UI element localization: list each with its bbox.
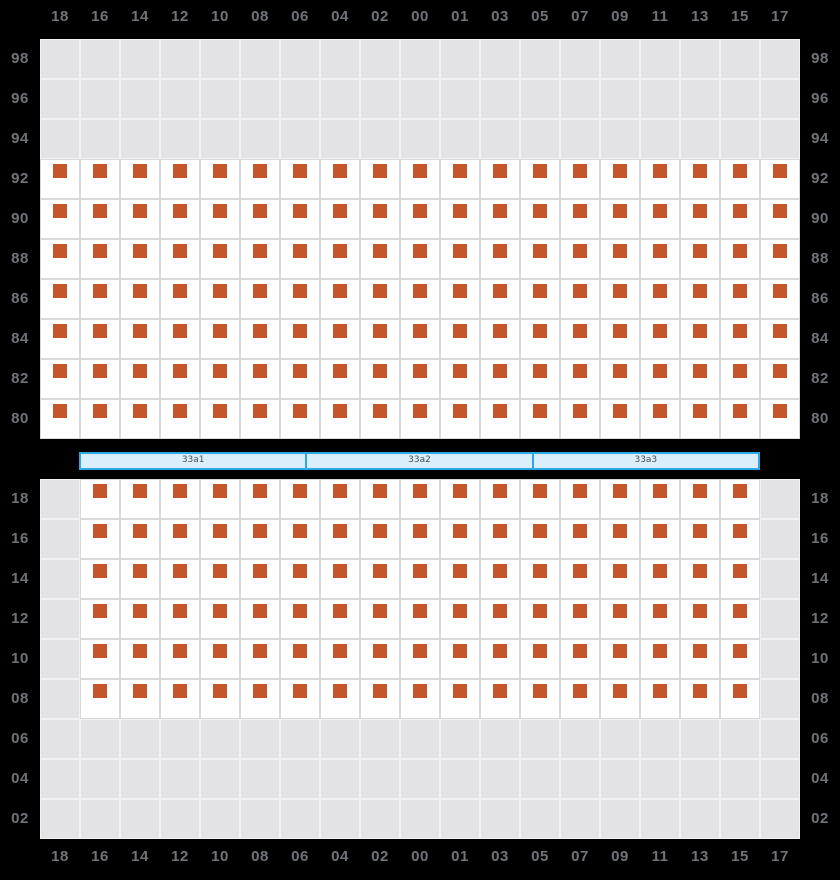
seat-cell[interactable] bbox=[120, 399, 160, 439]
seat-cell[interactable] bbox=[240, 239, 280, 279]
seat-cell[interactable] bbox=[720, 519, 760, 559]
seat-marker bbox=[693, 164, 707, 178]
seat-cell[interactable] bbox=[40, 399, 80, 439]
seat-cell[interactable] bbox=[480, 199, 520, 239]
row-label-right: 98 bbox=[800, 39, 840, 79]
seat-cell[interactable] bbox=[320, 199, 360, 239]
seat-cell[interactable] bbox=[80, 159, 120, 199]
seat-cell[interactable] bbox=[400, 159, 440, 199]
seat-cell[interactable] bbox=[280, 279, 320, 319]
seat-cell[interactable] bbox=[440, 359, 480, 399]
seat-cell[interactable] bbox=[560, 559, 600, 599]
seat-cell[interactable] bbox=[320, 319, 360, 359]
seat-marker bbox=[213, 244, 227, 258]
seat-cell[interactable] bbox=[280, 159, 320, 199]
seat-cell[interactable] bbox=[720, 159, 760, 199]
seat-cell[interactable] bbox=[400, 199, 440, 239]
seat-cell[interactable] bbox=[320, 479, 360, 519]
seat-cell[interactable] bbox=[400, 399, 440, 439]
seat-cell[interactable] bbox=[160, 599, 200, 639]
seat-cell[interactable] bbox=[280, 239, 320, 279]
seat-cell[interactable] bbox=[200, 159, 240, 199]
seat-cell[interactable] bbox=[640, 239, 680, 279]
seat-cell[interactable] bbox=[640, 319, 680, 359]
seat-marker bbox=[653, 684, 667, 698]
seat-cell[interactable] bbox=[200, 679, 240, 719]
seat-marker bbox=[533, 204, 547, 218]
seat-cell[interactable] bbox=[560, 479, 600, 519]
seat-cell[interactable] bbox=[560, 159, 600, 199]
seat-cell[interactable] bbox=[360, 559, 400, 599]
seat-cell[interactable] bbox=[480, 679, 520, 719]
seat-cell[interactable] bbox=[440, 559, 480, 599]
seat-cell[interactable] bbox=[640, 559, 680, 599]
seat-cell[interactable] bbox=[640, 279, 680, 319]
seat-cell[interactable] bbox=[760, 279, 800, 319]
seat-cell[interactable] bbox=[600, 639, 640, 679]
seat-cell[interactable] bbox=[280, 399, 320, 439]
seat-cell[interactable] bbox=[80, 679, 120, 719]
seat-cell[interactable] bbox=[320, 399, 360, 439]
seat-cell[interactable] bbox=[560, 279, 600, 319]
seat-cell[interactable] bbox=[560, 639, 600, 679]
seat-cell[interactable] bbox=[200, 639, 240, 679]
empty-cell bbox=[760, 39, 800, 79]
seat-marker bbox=[573, 604, 587, 618]
seat-cell[interactable] bbox=[720, 239, 760, 279]
empty-cell bbox=[720, 79, 760, 119]
seat-cell[interactable] bbox=[240, 279, 280, 319]
empty-cell bbox=[400, 79, 440, 119]
empty-cell bbox=[200, 79, 240, 119]
seat-cell[interactable] bbox=[120, 199, 160, 239]
seat-cell[interactable] bbox=[760, 199, 800, 239]
seat-cell[interactable] bbox=[360, 639, 400, 679]
seat-cell[interactable] bbox=[280, 679, 320, 719]
seat-cell[interactable] bbox=[600, 519, 640, 559]
seat-cell[interactable] bbox=[720, 199, 760, 239]
seat-cell[interactable] bbox=[280, 319, 320, 359]
seat-cell[interactable] bbox=[520, 359, 560, 399]
seat-cell[interactable] bbox=[480, 239, 520, 279]
seat-cell[interactable] bbox=[360, 479, 400, 519]
seat-cell[interactable] bbox=[280, 639, 320, 679]
seat-marker bbox=[493, 644, 507, 658]
seat-marker bbox=[53, 244, 67, 258]
seat-cell[interactable] bbox=[680, 559, 720, 599]
seat-cell[interactable] bbox=[440, 599, 480, 639]
seat-cell[interactable] bbox=[440, 279, 480, 319]
seat-cell[interactable] bbox=[120, 639, 160, 679]
seat-cell[interactable] bbox=[160, 639, 200, 679]
seat-cell[interactable] bbox=[520, 399, 560, 439]
seat-cell[interactable] bbox=[480, 159, 520, 199]
seat-cell[interactable] bbox=[320, 519, 360, 559]
seat-marker bbox=[173, 604, 187, 618]
seat-cell[interactable] bbox=[480, 559, 520, 599]
seat-cell[interactable] bbox=[160, 199, 200, 239]
seat-cell[interactable] bbox=[120, 279, 160, 319]
seat-cell[interactable] bbox=[480, 519, 520, 559]
seat-cell[interactable] bbox=[160, 239, 200, 279]
seat-cell[interactable] bbox=[240, 559, 280, 599]
seat-cell[interactable] bbox=[440, 239, 480, 279]
row-label-left: 86 bbox=[0, 279, 40, 319]
seat-marker bbox=[133, 364, 147, 378]
seat-marker bbox=[333, 284, 347, 298]
seat-cell[interactable] bbox=[280, 519, 320, 559]
seat-cell[interactable] bbox=[600, 279, 640, 319]
seat-cell[interactable] bbox=[720, 479, 760, 519]
seat-cell[interactable] bbox=[400, 639, 440, 679]
seat-cell[interactable] bbox=[240, 599, 280, 639]
seat-cell[interactable] bbox=[600, 679, 640, 719]
empty-cell bbox=[40, 759, 80, 799]
seat-cell[interactable] bbox=[680, 679, 720, 719]
seat-cell[interactable] bbox=[680, 519, 720, 559]
seat-cell[interactable] bbox=[720, 359, 760, 399]
seat-cell[interactable] bbox=[40, 279, 80, 319]
seat-cell[interactable] bbox=[320, 359, 360, 399]
seat-cell[interactable] bbox=[520, 239, 560, 279]
seat-cell[interactable] bbox=[560, 239, 600, 279]
seat-cell[interactable] bbox=[320, 599, 360, 639]
seat-cell[interactable] bbox=[760, 359, 800, 399]
seat-marker bbox=[93, 564, 107, 578]
seat-cell[interactable] bbox=[240, 159, 280, 199]
seat-marker bbox=[373, 484, 387, 498]
seat-cell[interactable] bbox=[640, 159, 680, 199]
seat-cell[interactable] bbox=[80, 479, 120, 519]
seat-marker bbox=[333, 404, 347, 418]
seat-cell[interactable] bbox=[240, 399, 280, 439]
empty-cell bbox=[200, 719, 240, 759]
seat-cell[interactable] bbox=[200, 239, 240, 279]
seat-cell[interactable] bbox=[400, 519, 440, 559]
seat-cell[interactable] bbox=[440, 199, 480, 239]
seat-cell[interactable] bbox=[400, 359, 440, 399]
seat-cell[interactable] bbox=[720, 399, 760, 439]
column-label: 04 bbox=[320, 0, 360, 33]
seat-cell[interactable] bbox=[40, 239, 80, 279]
seat-cell[interactable] bbox=[680, 639, 720, 679]
seat-cell[interactable] bbox=[240, 679, 280, 719]
row-label-left: 80 bbox=[0, 399, 40, 439]
seat-cell[interactable] bbox=[680, 479, 720, 519]
seat-cell[interactable] bbox=[80, 639, 120, 679]
seat-cell[interactable] bbox=[160, 399, 200, 439]
empty-cell bbox=[280, 719, 320, 759]
seat-cell[interactable] bbox=[360, 279, 400, 319]
seat-cell[interactable] bbox=[160, 679, 200, 719]
seat-marker bbox=[213, 164, 227, 178]
seat-cell[interactable] bbox=[720, 559, 760, 599]
seat-cell[interactable] bbox=[640, 599, 680, 639]
seat-cell[interactable] bbox=[760, 319, 800, 359]
seat-cell[interactable] bbox=[720, 599, 760, 639]
seat-cell[interactable] bbox=[480, 279, 520, 319]
empty-cell bbox=[680, 759, 720, 799]
section-segment[interactable]: 33a1 bbox=[79, 452, 307, 470]
seat-cell[interactable] bbox=[160, 359, 200, 399]
seat-cell[interactable] bbox=[520, 479, 560, 519]
seat-marker bbox=[533, 564, 547, 578]
seat-cell[interactable] bbox=[360, 519, 400, 559]
seat-cell[interactable] bbox=[520, 599, 560, 639]
empty-cell bbox=[120, 759, 160, 799]
seat-cell[interactable] bbox=[440, 319, 480, 359]
seat-cell[interactable] bbox=[120, 159, 160, 199]
seat-cell[interactable] bbox=[600, 359, 640, 399]
seat-cell[interactable] bbox=[480, 399, 520, 439]
seat-marker bbox=[373, 244, 387, 258]
seat-cell[interactable] bbox=[280, 199, 320, 239]
seat-cell[interactable] bbox=[720, 319, 760, 359]
seat-cell[interactable] bbox=[440, 519, 480, 559]
seat-cell[interactable] bbox=[400, 479, 440, 519]
section-segment[interactable]: 33a3 bbox=[532, 452, 760, 470]
seat-marker bbox=[613, 644, 627, 658]
seat-cell[interactable] bbox=[680, 359, 720, 399]
seat-cell[interactable] bbox=[120, 599, 160, 639]
seat-cell[interactable] bbox=[520, 519, 560, 559]
seat-cell[interactable] bbox=[600, 599, 640, 639]
empty-cell bbox=[40, 639, 80, 679]
empty-cell bbox=[400, 39, 440, 79]
empty-cell bbox=[280, 759, 320, 799]
seat-cell[interactable] bbox=[520, 639, 560, 679]
seat-cell[interactable] bbox=[160, 319, 200, 359]
seat-cell[interactable] bbox=[600, 399, 640, 439]
seat-cell[interactable] bbox=[120, 479, 160, 519]
seat-cell[interactable] bbox=[80, 399, 120, 439]
seat-cell[interactable] bbox=[200, 479, 240, 519]
seat-cell[interactable] bbox=[520, 559, 560, 599]
seat-cell[interactable] bbox=[360, 319, 400, 359]
seat-cell[interactable] bbox=[160, 159, 200, 199]
seat-cell[interactable] bbox=[720, 679, 760, 719]
seat-cell[interactable] bbox=[760, 399, 800, 439]
seat-cell[interactable] bbox=[520, 199, 560, 239]
seat-cell[interactable] bbox=[600, 199, 640, 239]
seat-cell[interactable] bbox=[680, 599, 720, 639]
seat-cell[interactable] bbox=[200, 279, 240, 319]
seat-cell[interactable] bbox=[680, 319, 720, 359]
seat-cell[interactable] bbox=[520, 679, 560, 719]
seat-cell[interactable] bbox=[360, 159, 400, 199]
seat-marker bbox=[413, 484, 427, 498]
seat-cell[interactable] bbox=[640, 519, 680, 559]
empty-cell bbox=[40, 79, 80, 119]
seat-cell[interactable] bbox=[520, 159, 560, 199]
seat-cell[interactable] bbox=[760, 159, 800, 199]
seat-marker bbox=[773, 324, 787, 338]
seat-cell[interactable] bbox=[240, 519, 280, 559]
seat-cell[interactable] bbox=[440, 399, 480, 439]
seat-marker bbox=[293, 644, 307, 658]
empty-cell bbox=[760, 79, 800, 119]
seat-cell[interactable] bbox=[360, 239, 400, 279]
seat-cell[interactable] bbox=[240, 359, 280, 399]
empty-cell bbox=[80, 79, 120, 119]
seat-cell[interactable] bbox=[240, 199, 280, 239]
seat-cell[interactable] bbox=[240, 479, 280, 519]
seat-cell[interactable] bbox=[200, 319, 240, 359]
seat-cell[interactable] bbox=[560, 599, 600, 639]
seat-cell[interactable] bbox=[480, 359, 520, 399]
seat-cell[interactable] bbox=[160, 279, 200, 319]
seat-cell[interactable] bbox=[240, 639, 280, 679]
seat-cell[interactable] bbox=[40, 359, 80, 399]
seat-cell[interactable] bbox=[640, 359, 680, 399]
seat-cell[interactable] bbox=[360, 679, 400, 719]
seat-cell[interactable] bbox=[120, 559, 160, 599]
seat-cell[interactable] bbox=[80, 599, 120, 639]
seat-cell[interactable] bbox=[720, 279, 760, 319]
seat-cell[interactable] bbox=[760, 239, 800, 279]
seat-cell[interactable] bbox=[160, 479, 200, 519]
seat-cell[interactable] bbox=[640, 479, 680, 519]
row-label-right: 10 bbox=[800, 639, 840, 679]
seat-cell[interactable] bbox=[200, 519, 240, 559]
seat-cell[interactable] bbox=[160, 559, 200, 599]
seat-cell[interactable] bbox=[680, 199, 720, 239]
seat-cell[interactable] bbox=[560, 319, 600, 359]
row-label-right: 96 bbox=[800, 79, 840, 119]
seat-marker bbox=[773, 364, 787, 378]
seat-cell[interactable] bbox=[480, 599, 520, 639]
seat-cell[interactable] bbox=[240, 319, 280, 359]
section-segment[interactable]: 33a2 bbox=[305, 452, 533, 470]
seat-cell[interactable] bbox=[320, 679, 360, 719]
seat-cell[interactable] bbox=[520, 319, 560, 359]
seat-cell[interactable] bbox=[320, 559, 360, 599]
seat-cell[interactable] bbox=[120, 679, 160, 719]
seat-cell[interactable] bbox=[640, 399, 680, 439]
seat-cell[interactable] bbox=[400, 239, 440, 279]
seat-cell[interactable] bbox=[400, 599, 440, 639]
seat-cell[interactable] bbox=[120, 359, 160, 399]
seat-cell[interactable] bbox=[600, 559, 640, 599]
seat-cell[interactable] bbox=[360, 359, 400, 399]
seat-cell[interactable] bbox=[200, 559, 240, 599]
seat-marker bbox=[253, 404, 267, 418]
seat-cell[interactable] bbox=[200, 199, 240, 239]
seat-cell[interactable] bbox=[280, 559, 320, 599]
seat-cell[interactable] bbox=[80, 559, 120, 599]
seat-cell[interactable] bbox=[560, 679, 600, 719]
seat-cell[interactable] bbox=[200, 359, 240, 399]
empty-cell bbox=[720, 799, 760, 839]
row-label-left: 82 bbox=[0, 359, 40, 399]
seat-cell[interactable] bbox=[440, 679, 480, 719]
seat-cell[interactable] bbox=[400, 679, 440, 719]
seat-cell[interactable] bbox=[480, 479, 520, 519]
seat-cell[interactable] bbox=[80, 519, 120, 559]
seat-cell[interactable] bbox=[200, 599, 240, 639]
seat-cell[interactable] bbox=[280, 599, 320, 639]
seat-marker bbox=[773, 404, 787, 418]
seat-cell[interactable] bbox=[280, 359, 320, 399]
seat-cell[interactable] bbox=[320, 239, 360, 279]
seat-cell[interactable] bbox=[80, 359, 120, 399]
seat-cell[interactable] bbox=[560, 359, 600, 399]
seat-cell[interactable] bbox=[640, 199, 680, 239]
seat-cell[interactable] bbox=[400, 279, 440, 319]
seat-cell[interactable] bbox=[120, 319, 160, 359]
seat-marker bbox=[573, 564, 587, 578]
seat-cell[interactable] bbox=[360, 599, 400, 639]
seat-cell[interactable] bbox=[200, 399, 240, 439]
seat-cell[interactable] bbox=[600, 319, 640, 359]
seat-cell[interactable] bbox=[720, 639, 760, 679]
seat-cell[interactable] bbox=[360, 199, 400, 239]
seat-cell[interactable] bbox=[440, 479, 480, 519]
seat-cell[interactable] bbox=[600, 239, 640, 279]
seat-cell[interactable] bbox=[120, 519, 160, 559]
seat-cell[interactable] bbox=[400, 319, 440, 359]
seat-cell[interactable] bbox=[560, 519, 600, 559]
seat-cell[interactable] bbox=[480, 639, 520, 679]
seat-cell[interactable] bbox=[80, 199, 120, 239]
seat-cell[interactable] bbox=[280, 479, 320, 519]
seat-cell[interactable] bbox=[320, 159, 360, 199]
seat-cell[interactable] bbox=[360, 399, 400, 439]
empty-cell bbox=[360, 39, 400, 79]
seat-cell[interactable] bbox=[440, 639, 480, 679]
empty-cell bbox=[280, 119, 320, 159]
seat-cell[interactable] bbox=[680, 279, 720, 319]
empty-cell bbox=[600, 119, 640, 159]
column-label: 09 bbox=[600, 840, 640, 873]
seat-marker bbox=[213, 364, 227, 378]
seat-cell[interactable] bbox=[680, 399, 720, 439]
seat-marker bbox=[613, 244, 627, 258]
seat-cell[interactable] bbox=[80, 319, 120, 359]
seat-grid-lower bbox=[40, 479, 800, 839]
seat-marker bbox=[733, 484, 747, 498]
seat-cell[interactable] bbox=[600, 159, 640, 199]
seat-cell[interactable] bbox=[520, 279, 560, 319]
seat-cell[interactable] bbox=[560, 199, 600, 239]
seat-cell[interactable] bbox=[680, 159, 720, 199]
row-label-left: 18 bbox=[0, 479, 40, 519]
seat-cell[interactable] bbox=[600, 479, 640, 519]
seat-cell[interactable] bbox=[560, 399, 600, 439]
seat-marker bbox=[413, 324, 427, 338]
seat-cell[interactable] bbox=[40, 319, 80, 359]
seat-marker bbox=[173, 244, 187, 258]
seat-cell[interactable] bbox=[680, 239, 720, 279]
seat-cell[interactable] bbox=[640, 679, 680, 719]
seat-cell[interactable] bbox=[80, 239, 120, 279]
seat-cell[interactable] bbox=[160, 519, 200, 559]
seat-cell[interactable] bbox=[320, 279, 360, 319]
seat-cell[interactable] bbox=[440, 159, 480, 199]
seat-cell[interactable] bbox=[40, 159, 80, 199]
seat-cell[interactable] bbox=[120, 239, 160, 279]
seat-marker bbox=[733, 204, 747, 218]
seat-cell[interactable] bbox=[480, 319, 520, 359]
seat-cell[interactable] bbox=[320, 639, 360, 679]
seat-cell[interactable] bbox=[80, 279, 120, 319]
seat-cell[interactable] bbox=[400, 559, 440, 599]
seat-marker bbox=[293, 364, 307, 378]
seat-cell[interactable] bbox=[40, 199, 80, 239]
seat-marker bbox=[573, 244, 587, 258]
seat-cell[interactable] bbox=[640, 639, 680, 679]
column-label: 08 bbox=[240, 840, 280, 873]
